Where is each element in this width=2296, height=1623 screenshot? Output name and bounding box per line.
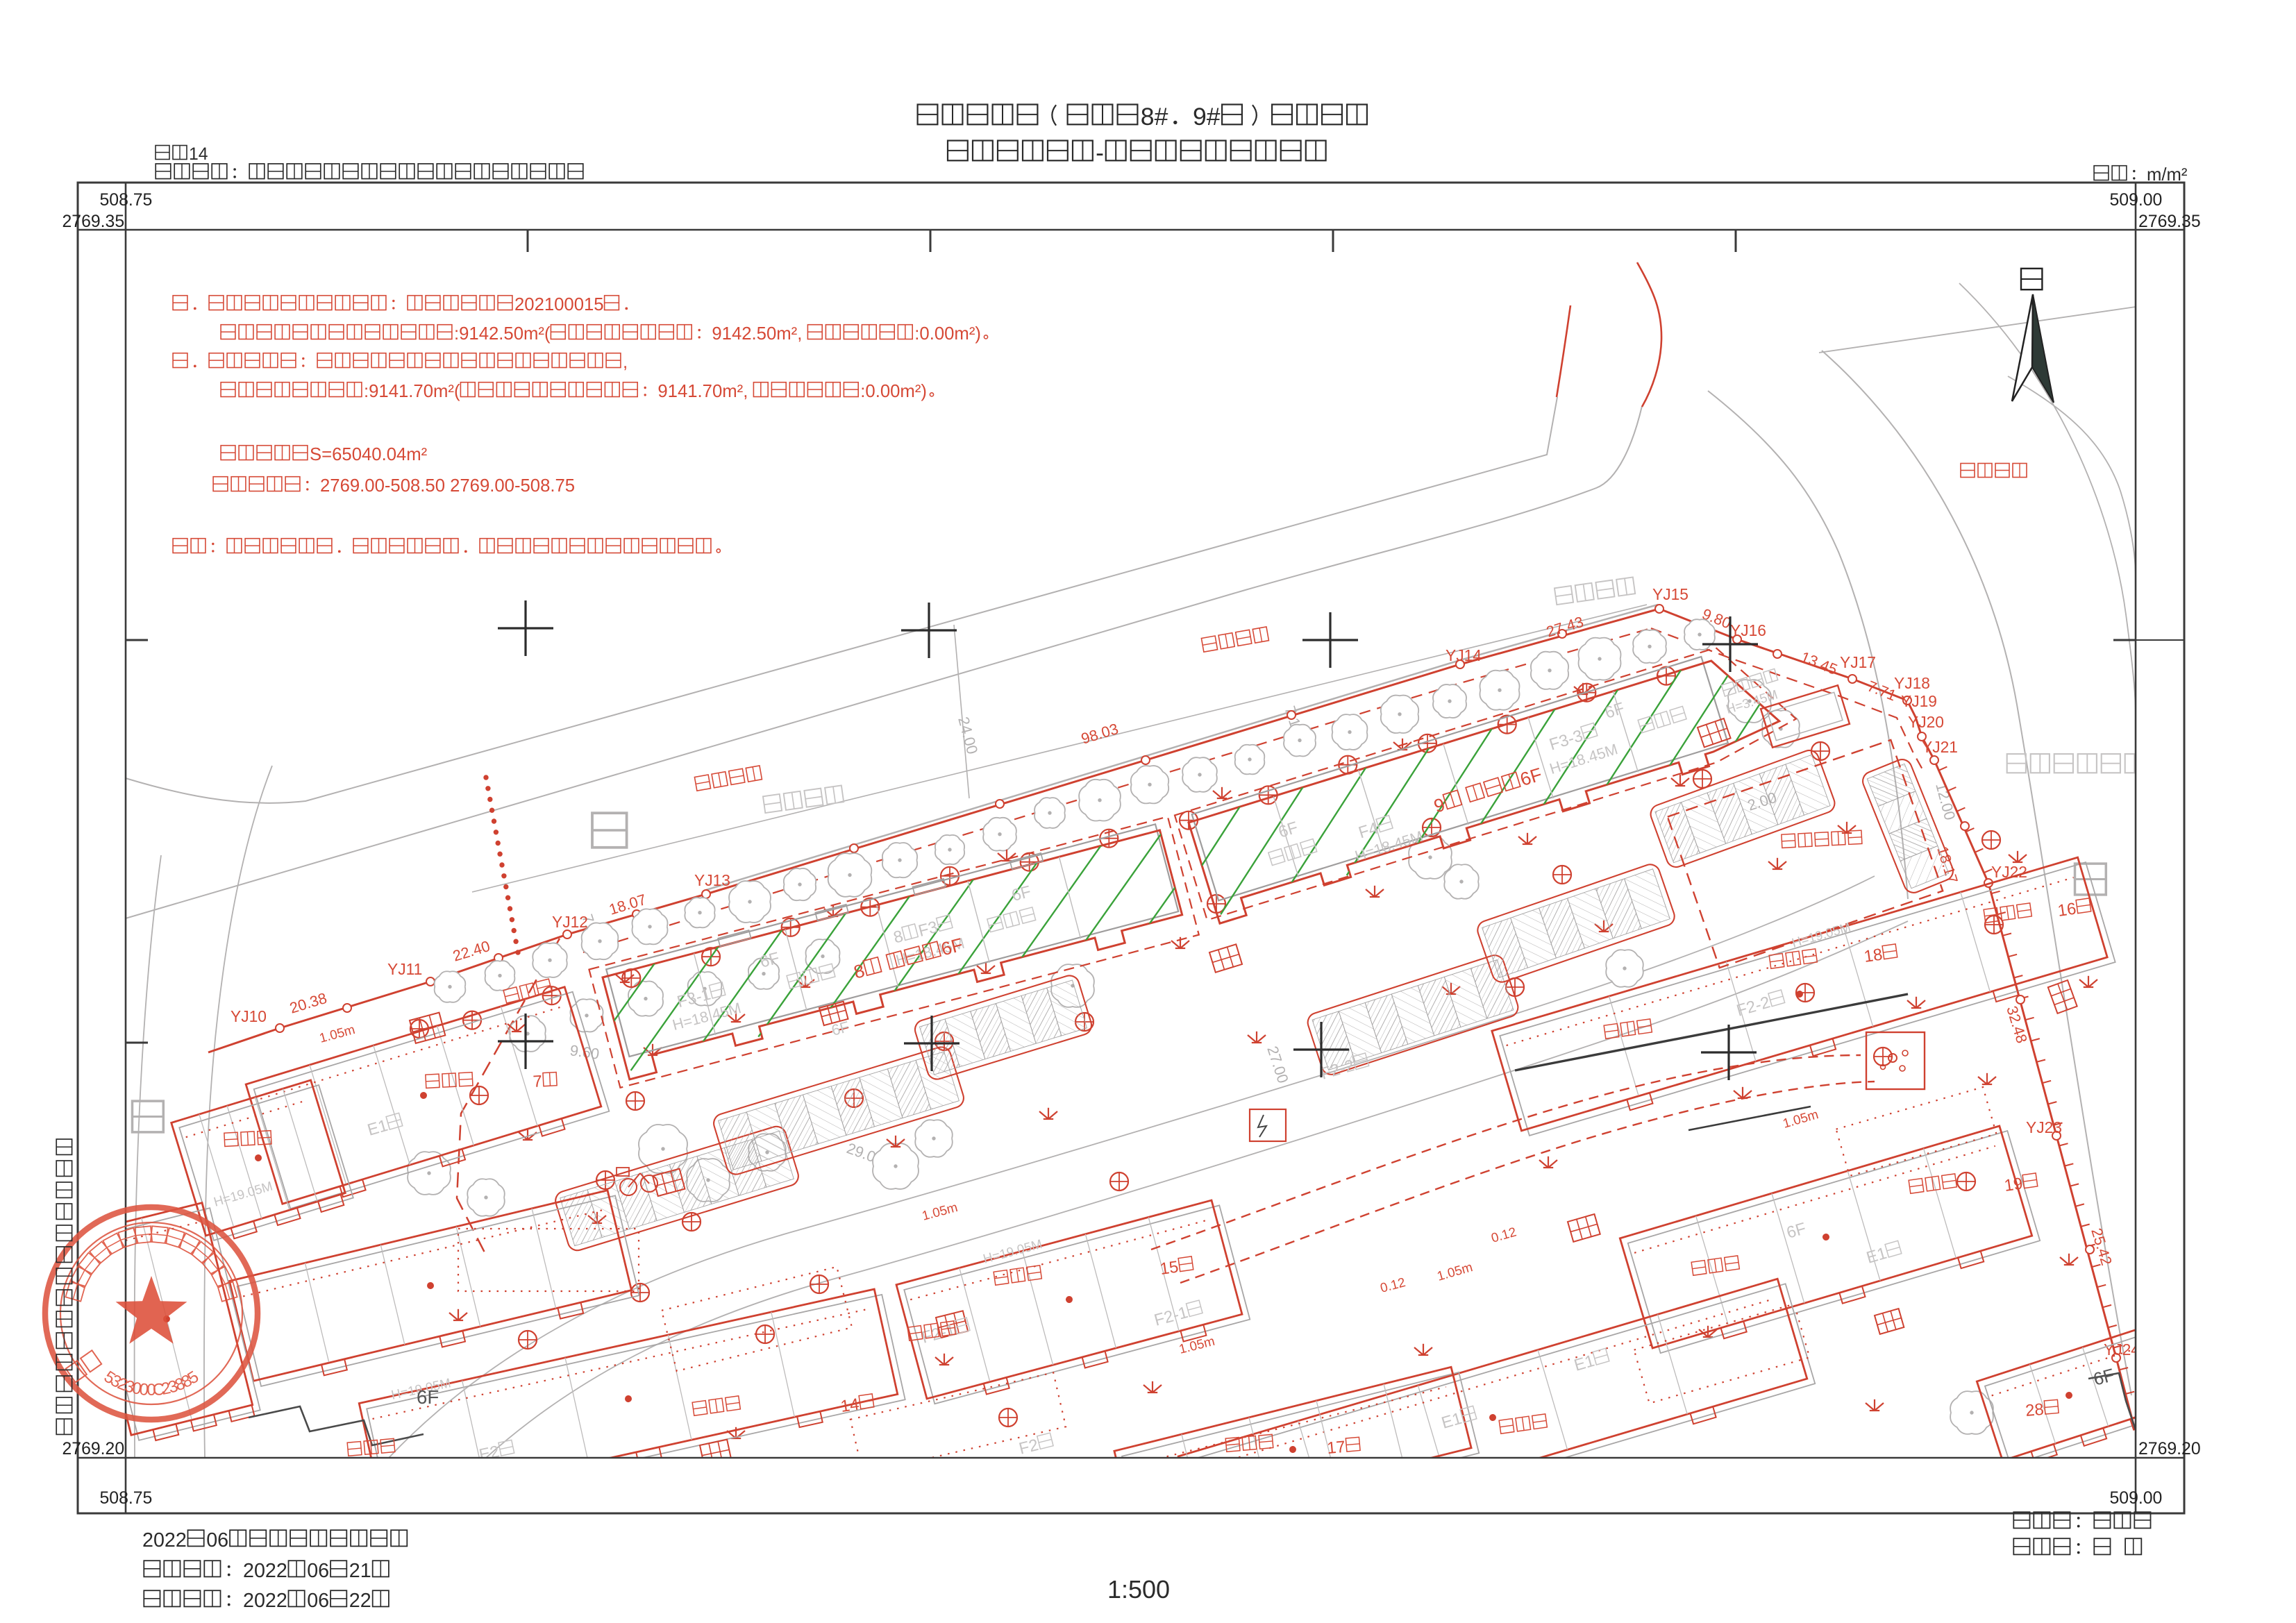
svg-text:1:500: 1:500: [1107, 1575, 1170, 1604]
svg-text:YJ23: YJ23: [2026, 1118, 2062, 1136]
svg-text:YJ11: YJ11: [387, 960, 422, 978]
svg-text:16: 16: [2056, 900, 2077, 920]
svg-text:9141.70m²,: 9141.70m²,: [657, 382, 748, 401]
svg-text:28: 28: [2025, 1400, 2045, 1420]
svg-text:YJ24: YJ24: [2104, 1340, 2140, 1359]
svg-text:YJ17: YJ17: [1840, 653, 1876, 671]
svg-text:06: 06: [206, 1529, 228, 1551]
svg-text:YJ15: YJ15: [1652, 585, 1689, 603]
svg-text:YJ12: YJ12: [552, 913, 588, 931]
svg-text:508.75: 508.75: [100, 1489, 153, 1508]
svg-text:14: 14: [189, 145, 208, 164]
svg-text:6F: 6F: [417, 1386, 439, 1408]
svg-text:06: 06: [307, 1590, 329, 1612]
svg-text::9142.50m²(: :9142.50m²(: [454, 324, 551, 344]
svg-text:YJ21: YJ21: [1922, 738, 1958, 756]
svg-text:202100015: 202100015: [514, 295, 604, 314]
svg-text:17: 17: [1326, 1438, 1346, 1458]
svg-text:2022: 2022: [142, 1529, 187, 1551]
svg-text:8#: 8#: [1141, 103, 1168, 131]
svg-text:7: 7: [533, 1072, 543, 1091]
svg-text:S=65040.04m²: S=65040.04m²: [310, 445, 428, 464]
svg-text:19: 19: [2003, 1175, 2024, 1195]
svg-text:2769.00-508.50 2769.00-508.7: 2769.00-508.50 2769.00-508.75: [320, 476, 575, 496]
svg-text:509.00: 509.00: [2110, 191, 2163, 210]
svg-text::0.00m²): :0.00m²): [860, 382, 927, 401]
svg-text:22: 22: [349, 1590, 371, 1612]
svg-text:9142.50m²,: 9142.50m²,: [712, 324, 802, 344]
svg-text:-: -: [1096, 139, 1104, 167]
svg-text:18: 18: [1863, 945, 1884, 966]
svg-text:2769.20: 2769.20: [62, 1440, 125, 1458]
svg-text:9#: 9#: [1193, 103, 1221, 131]
svg-text:21: 21: [349, 1560, 371, 1582]
svg-text:15: 15: [1159, 1258, 1180, 1279]
svg-text:2769.20: 2769.20: [2138, 1440, 2201, 1458]
svg-text:2022: 2022: [243, 1560, 287, 1582]
svg-text:,: ,: [623, 353, 628, 372]
svg-text:508.75: 508.75: [100, 191, 153, 210]
svg-text:YJ10: YJ10: [231, 1007, 267, 1025]
svg-text:2022: 2022: [243, 1590, 287, 1612]
svg-text:YJ19: YJ19: [1901, 692, 1937, 710]
svg-text:YJ13: YJ13: [694, 871, 730, 889]
svg-text:YJ16: YJ16: [1730, 621, 1766, 639]
svg-text::9141.70m²(: :9141.70m²(: [364, 382, 460, 401]
svg-text:YJ14: YJ14: [1446, 646, 1482, 664]
svg-text::0.00m²): :0.00m²): [914, 324, 981, 344]
svg-text:14: 14: [839, 1395, 860, 1416]
svg-text:YJ18: YJ18: [1894, 674, 1930, 692]
svg-text:2769.35: 2769.35: [2138, 212, 2201, 231]
svg-text:2769.35: 2769.35: [62, 212, 125, 231]
svg-text:YJ20: YJ20: [1908, 713, 1944, 731]
svg-text:509.00: 509.00: [2110, 1489, 2163, 1508]
svg-text:06: 06: [307, 1560, 329, 1582]
